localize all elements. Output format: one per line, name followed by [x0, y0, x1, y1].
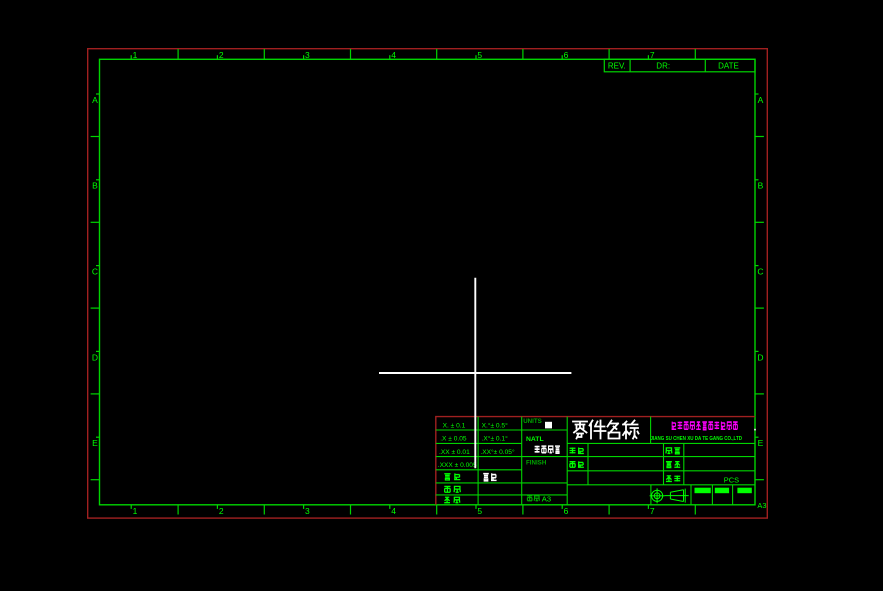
svg-text:2: 2 [219, 506, 224, 516]
svg-text:C: C [92, 267, 98, 277]
svg-text:.X ± 0.05: .X ± 0.05 [440, 436, 467, 443]
svg-text:3: 3 [305, 50, 310, 60]
svg-text:1: 1 [133, 50, 138, 60]
svg-text:D: D [757, 352, 763, 362]
svg-text:A3: A3 [757, 501, 766, 510]
svg-text:D: D [92, 352, 98, 362]
svg-text:REV.: REV. [608, 62, 626, 71]
svg-text:C: C [757, 267, 763, 277]
svg-text:1: 1 [133, 506, 138, 516]
svg-text:UNITS: UNITS [523, 418, 542, 425]
svg-text:X. ± 0.1: X. ± 0.1 [443, 422, 466, 429]
svg-text:3: 3 [305, 506, 310, 516]
svg-text:JIANG SU CHEN XU DA TE GANG CO: JIANG SU CHEN XU DA TE GANG CO.,LTD [651, 436, 743, 442]
svg-text:4: 4 [391, 506, 396, 516]
svg-text:.XXX ± 0.005: .XXX ± 0.005 [438, 462, 477, 469]
svg-text:.X°± 0.1°: .X°± 0.1° [482, 435, 508, 443]
svg-text:6: 6 [564, 50, 569, 60]
svg-text:2: 2 [219, 50, 224, 60]
svg-text:A: A [92, 95, 98, 105]
svg-text:NATL: NATL [526, 436, 544, 443]
svg-text:.XX ± 0.01: .XX ± 0.01 [439, 449, 470, 456]
svg-text:A3: A3 [542, 495, 551, 504]
svg-text:5: 5 [477, 50, 482, 60]
svg-text:PCS: PCS [724, 476, 739, 485]
svg-text:DATE: DATE [718, 62, 739, 71]
svg-text:B: B [758, 181, 764, 191]
svg-text:X.°± 0.5°: X.°± 0.5° [482, 421, 508, 429]
svg-text:5: 5 [477, 506, 482, 516]
svg-text:.XX°± 0.05°: .XX°± 0.05° [480, 448, 515, 456]
svg-text:E: E [758, 438, 764, 448]
svg-text:E: E [92, 438, 98, 448]
svg-text:7: 7 [650, 50, 655, 60]
svg-text:7: 7 [650, 506, 655, 516]
svg-text:4: 4 [391, 50, 396, 60]
svg-text:FINISH: FINISH [526, 460, 547, 467]
svg-text:A: A [758, 95, 764, 105]
svg-text:DR:: DR: [656, 62, 670, 71]
svg-text:6: 6 [564, 506, 569, 516]
svg-text:B: B [92, 181, 98, 191]
